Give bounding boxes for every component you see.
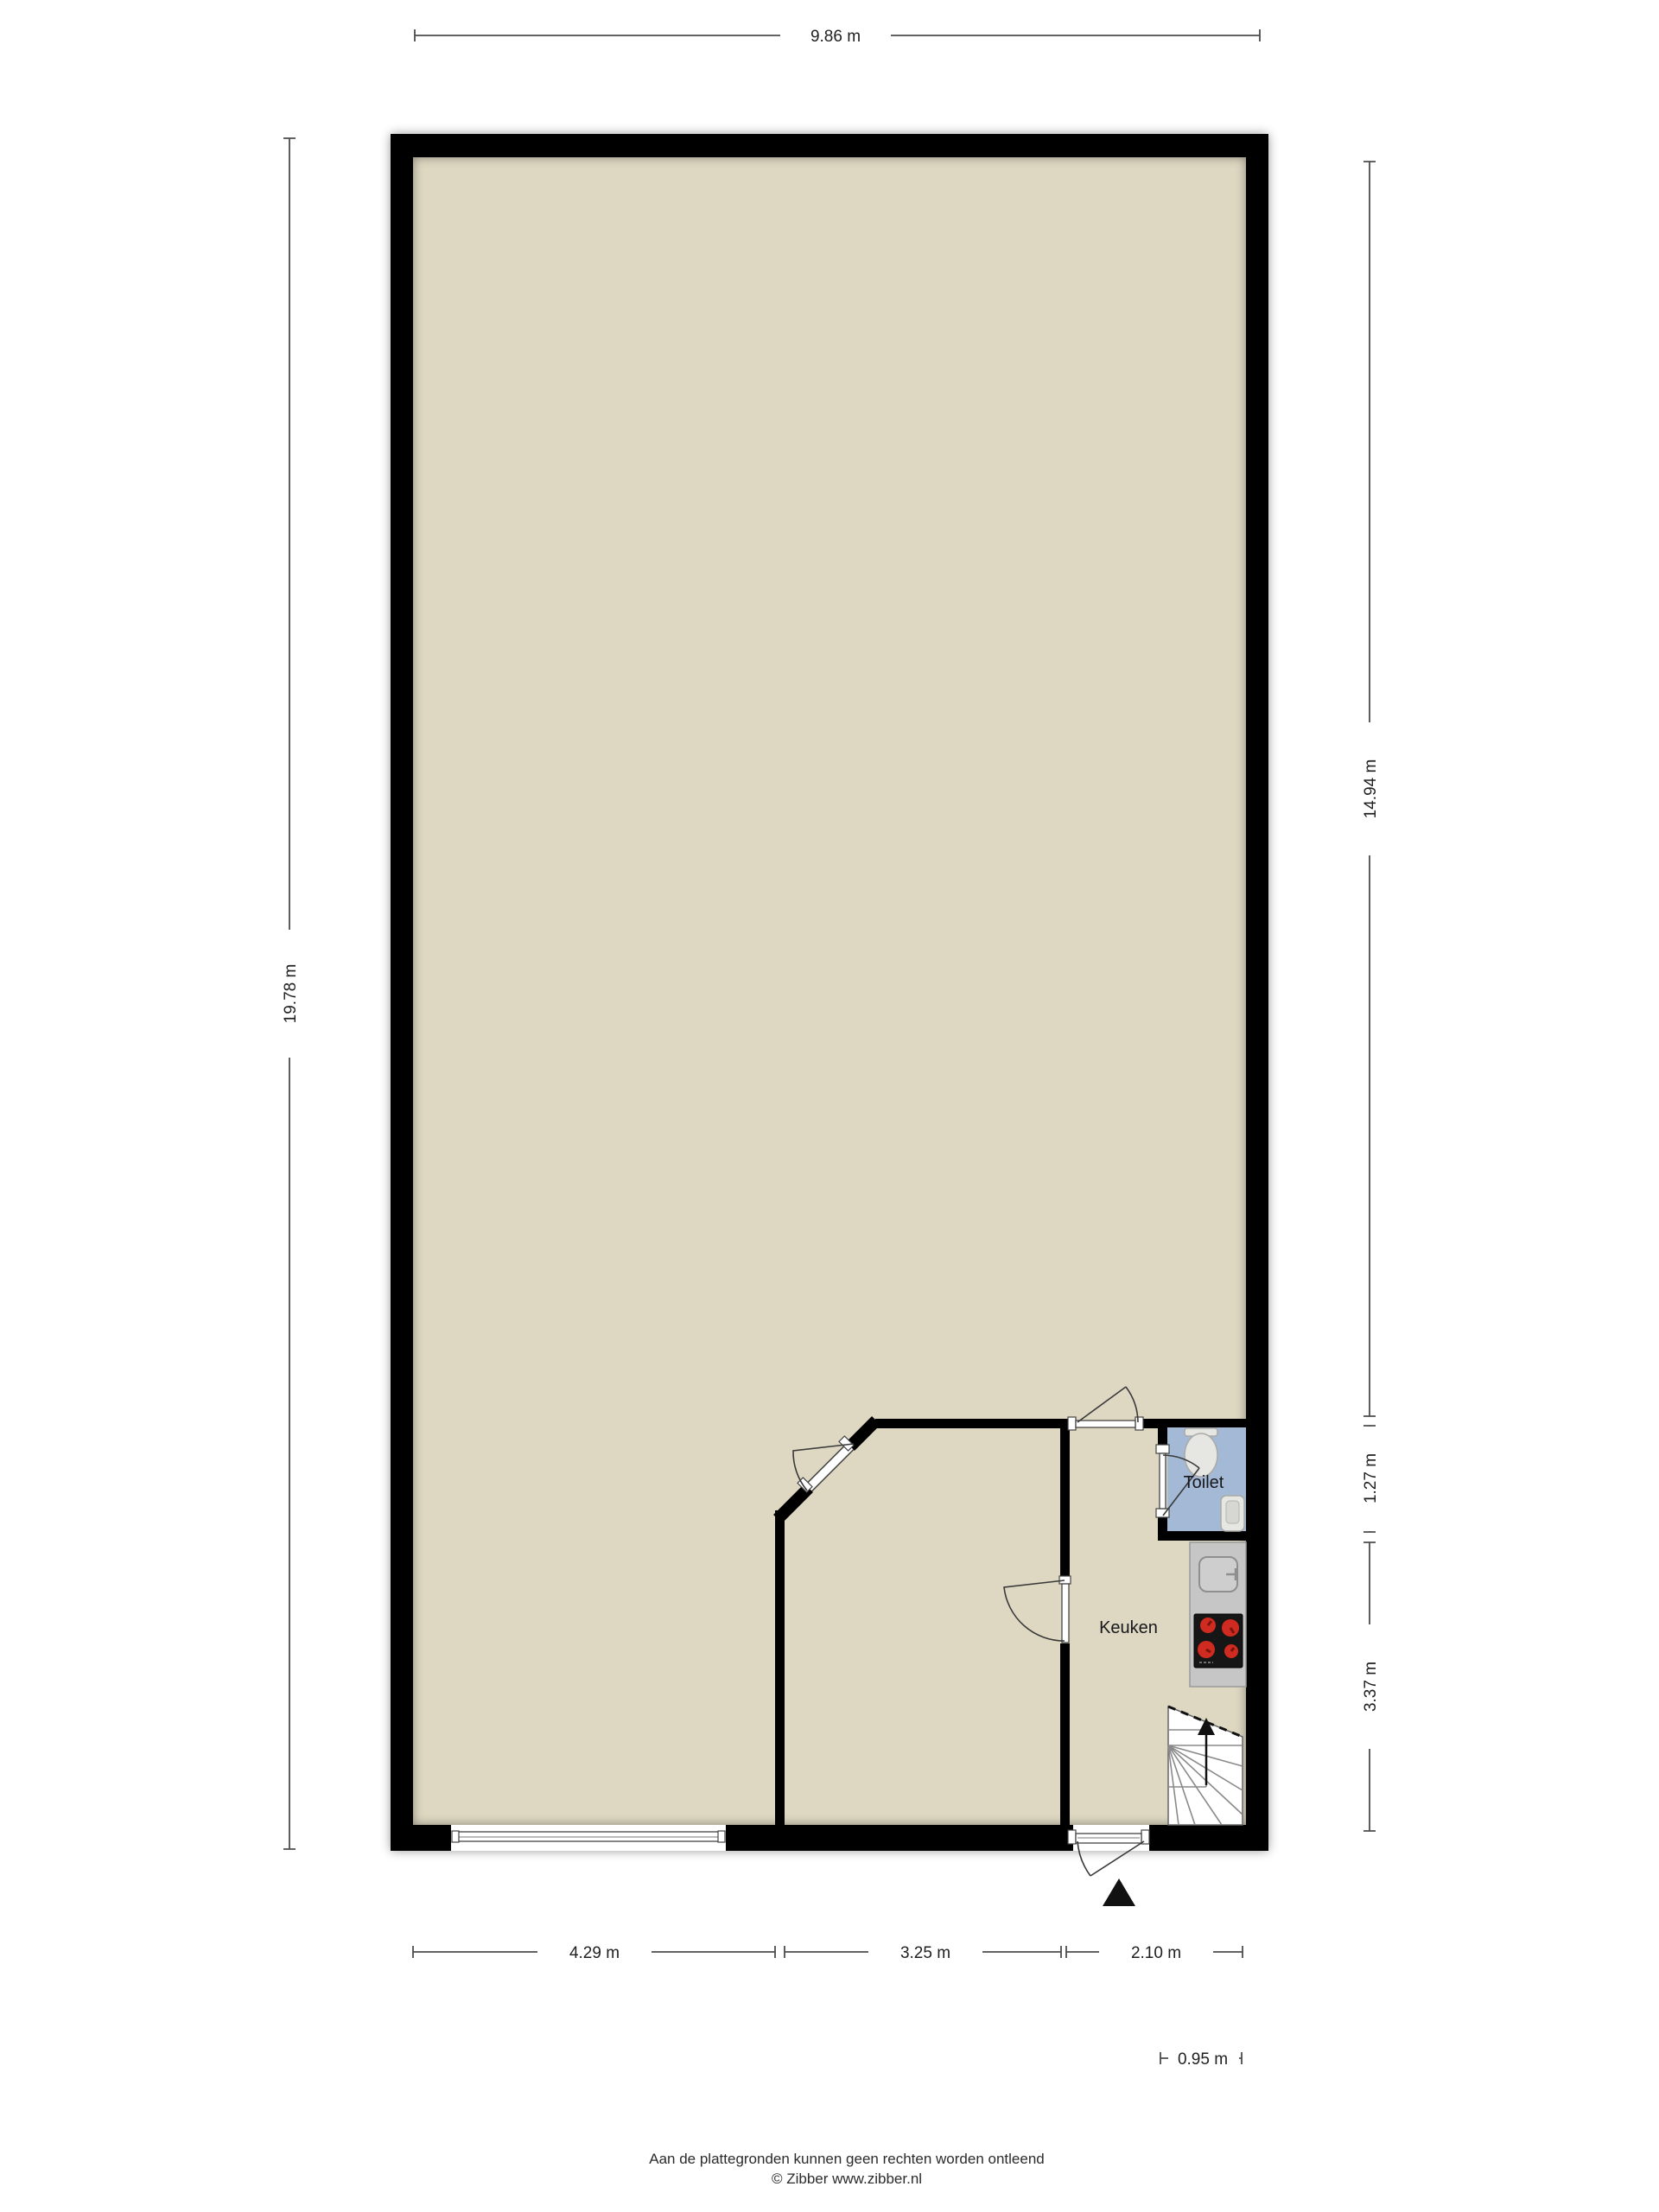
room-label-toilet: Toilet [1184, 1473, 1224, 1492]
dimension-top: 9.86 m [415, 23, 1260, 48]
dimension-bottom-2: 3.25 m [785, 1940, 1061, 1964]
dim-detail-label: 0.95 m [1178, 2050, 1228, 2069]
dim-bottom-1-label: 4.29 m [569, 1944, 620, 1962]
kitchen-counter [1190, 1542, 1246, 1687]
dimension-detail: 0.95 m [1160, 2046, 1242, 2070]
footer-copyright: © Zibber www.zibber.nl [772, 2171, 922, 2187]
window-bottom-left [451, 1825, 726, 1851]
dim-left-label: 19.78 m [282, 964, 300, 1024]
dimension-left: 19.78 m [275, 138, 302, 1849]
cooktop-icon [1194, 1614, 1243, 1668]
dimension-bottom-3: 2.10 m [1066, 1940, 1243, 1964]
dim-right-3-label: 3.37 m [1362, 1662, 1380, 1712]
footer: Aan de plattegronden kunnen geen rechten… [649, 2151, 1044, 2187]
dimension-right-2: 1.27 m [1355, 1426, 1382, 1532]
dim-bottom-3-label: 2.10 m [1131, 1944, 1181, 1962]
toilet-icon [1185, 1428, 1217, 1477]
entrance-arrow-icon [1103, 1878, 1135, 1906]
dim-top-label: 9.86 m [810, 28, 861, 46]
dimension-right-3: 3.37 m [1355, 1542, 1382, 1831]
main-floor [413, 157, 1246, 1825]
room-label-keuken: Keuken [1099, 1618, 1158, 1637]
dim-right-2-label: 1.27 m [1362, 1453, 1380, 1503]
dimension-bottom-1: 4.29 m [413, 1940, 775, 1964]
kitchen-sink-icon [1199, 1557, 1237, 1592]
dim-right-1-label: 14.94 m [1362, 760, 1380, 819]
entrance-door [1068, 1825, 1149, 1876]
floor-plan-canvas: Toilet Keuken 9.86 m 19.78 m 14.94 m 1.2… [0, 0, 1659, 2212]
dimension-right-1: 14.94 m [1355, 162, 1382, 1416]
footer-disclaimer: Aan de plattegronden kunnen geen rechten… [649, 2151, 1044, 2167]
hand-basin-icon [1221, 1496, 1244, 1531]
dim-bottom-2-label: 3.25 m [900, 1944, 950, 1962]
